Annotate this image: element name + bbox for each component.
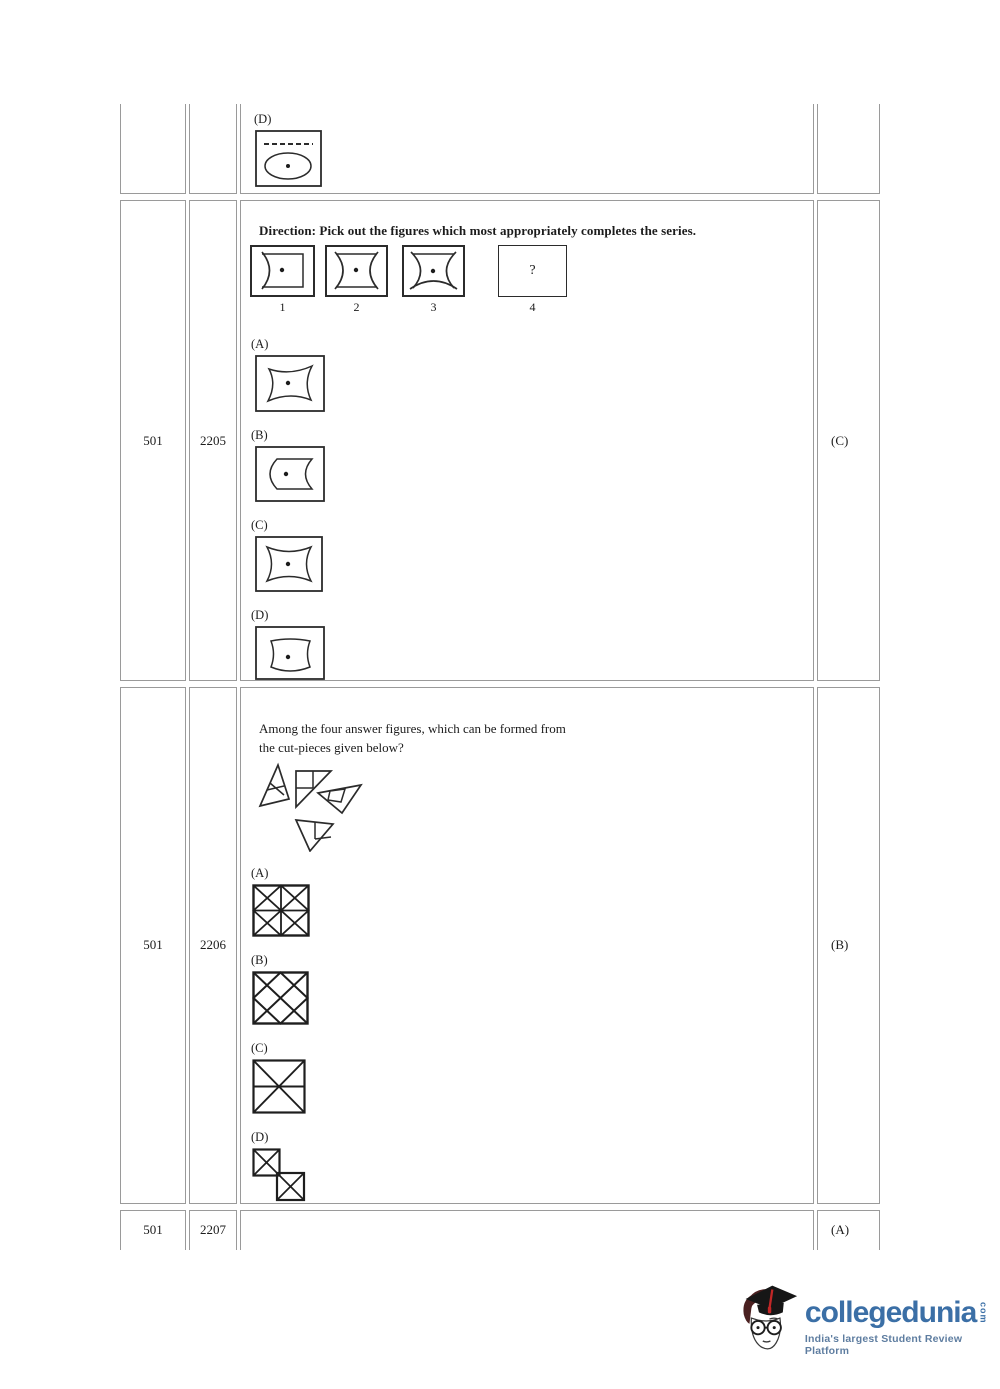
collegedunia-logo[interactable]: collegedunia com India's largest Student… xyxy=(738,1278,1000,1362)
series-number: 3 xyxy=(431,300,437,315)
option-b-label: (B) xyxy=(251,428,807,443)
series-figure-2-image xyxy=(325,245,388,297)
question-body-cell: Direction: Pick out the figures which mo… xyxy=(240,200,814,681)
option-b: (B) xyxy=(250,953,807,1025)
option-d: (D) xyxy=(250,608,807,680)
option-b: (B) xyxy=(250,428,807,502)
option-d-figure xyxy=(255,626,325,680)
series-figure-1: 1 xyxy=(250,245,315,315)
table-row: (D) xyxy=(120,104,880,194)
question-table: (D) 501 2205 Di xyxy=(117,98,883,1256)
partial-option-d-figure xyxy=(255,130,322,187)
option-a: (A) xyxy=(250,337,807,412)
mascot-icon xyxy=(738,1278,801,1362)
option-a-label: (A) xyxy=(251,866,807,881)
series-number: 1 xyxy=(280,300,286,315)
question-body-cell: (D) xyxy=(240,104,814,194)
option-c: (C) xyxy=(250,1041,807,1114)
question-body-cell: Among the four answer figures, which can… xyxy=(240,687,814,1204)
question-text: Among the four answer figures, which can… xyxy=(259,720,807,758)
option-b-figure xyxy=(252,971,309,1025)
answer-cell: (A) xyxy=(817,1210,880,1250)
brand-tagline: India's largest Student Review Platform xyxy=(805,1333,1000,1357)
option-c-figure xyxy=(252,1059,306,1114)
series-figure-1-image xyxy=(250,245,315,297)
option-c: (C) xyxy=(250,518,807,592)
serial-cell xyxy=(120,104,186,194)
option-a-figure xyxy=(252,884,310,937)
question-number-cell: 2206 xyxy=(189,687,237,1204)
answer-cell: (B) xyxy=(817,687,880,1204)
option-a-figure xyxy=(255,355,325,412)
option-c-label: (C) xyxy=(251,1041,807,1056)
question-body-cell xyxy=(240,1210,814,1250)
question-number-cell: 2207 xyxy=(189,1210,237,1250)
option-d-label: (D) xyxy=(254,112,807,127)
option-d-label: (D) xyxy=(251,1130,807,1145)
document-page: (D) 501 2205 Di xyxy=(0,0,1000,1389)
question-mark-box: ? xyxy=(498,245,567,297)
option-b-label: (B) xyxy=(251,953,807,968)
series-figures: 1 2 xyxy=(250,245,807,315)
option-a-label: (A) xyxy=(251,337,807,352)
question-text-line2: the cut-pieces given below? xyxy=(259,740,404,755)
brand-name: collegedunia xyxy=(805,1298,976,1328)
serial-cell: 501 xyxy=(120,200,186,681)
brand-tld: com xyxy=(978,1302,988,1324)
series-figure-3: 3 xyxy=(402,245,465,315)
question-number-cell xyxy=(189,104,237,194)
series-number: 4 xyxy=(530,300,536,315)
question-text-line1: Among the four answer figures, which can… xyxy=(259,721,566,736)
cut-pieces-figure xyxy=(256,762,368,852)
answer-cell xyxy=(817,104,880,194)
table-row: 501 2205 Direction: Pick out the figures… xyxy=(120,200,880,681)
table-row: 501 2206 Among the four answer figures, … xyxy=(120,687,880,1204)
option-d-label: (D) xyxy=(251,608,807,623)
answer-cell: (C) xyxy=(817,200,880,681)
option-c-label: (C) xyxy=(251,518,807,533)
table-row: 501 2207 (A) xyxy=(120,1210,880,1250)
serial-cell: 501 xyxy=(120,1210,186,1250)
option-d-figure xyxy=(252,1148,307,1203)
option-c-figure xyxy=(255,536,323,592)
series-figure-4: ? 4 xyxy=(498,245,567,315)
option-b-figure xyxy=(255,446,325,502)
option-d: (D) xyxy=(250,1130,807,1203)
serial-cell: 501 xyxy=(120,687,186,1204)
series-figure-2: 2 xyxy=(325,245,388,315)
series-number: 2 xyxy=(354,300,360,315)
option-a: (A) xyxy=(250,866,807,937)
series-figure-3-image xyxy=(402,245,465,297)
question-direction-text: Direction: Pick out the figures which mo… xyxy=(259,223,807,239)
question-number-cell: 2205 xyxy=(189,200,237,681)
